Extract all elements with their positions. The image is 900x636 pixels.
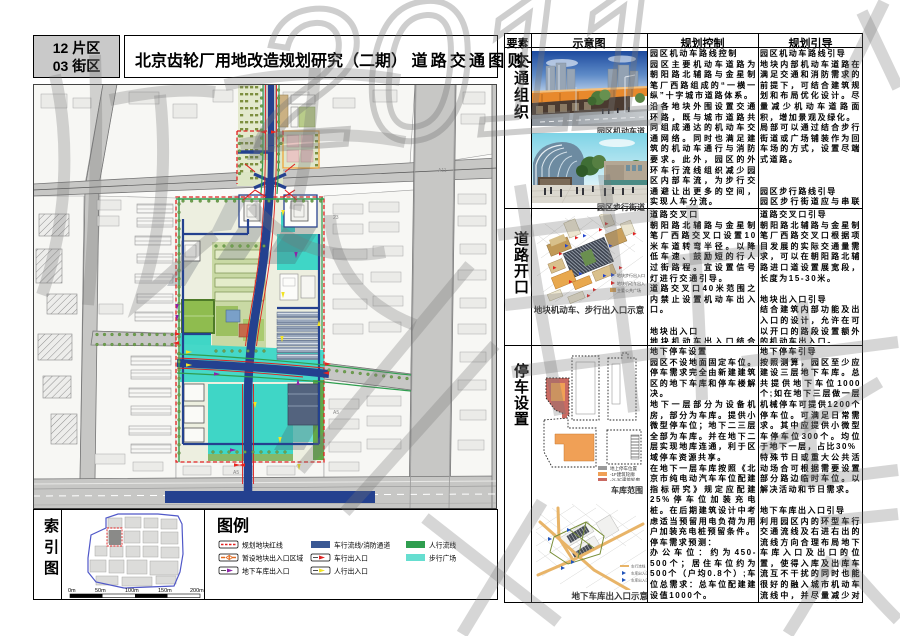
svg-text:地下车库出入口: 地下车库出入口: [242, 567, 290, 576]
svg-text:100m: 100m: [125, 588, 139, 594]
svg-text:200m: 200m: [190, 588, 204, 594]
svg-text:暂设地块出入口区域: 暂设地块出入口区域: [242, 554, 303, 563]
svg-text:0m: 0m: [68, 588, 76, 594]
svg-text:车库出入口: 车库出入口: [631, 571, 647, 576]
svg-text:A5: A5: [233, 470, 239, 476]
svg-text:规划地块红线: 规划地块红线: [242, 541, 283, 550]
svg-text:步行广场: 步行广场: [429, 554, 456, 563]
svg-text:车行流线/消防通道: 车行流线/消防通道: [334, 541, 390, 550]
svg-text:A11: A11: [438, 168, 447, 174]
svg-text:主要公共广场: 主要公共广场: [617, 287, 641, 293]
svg-text:车库出入口: 车库出入口: [631, 578, 647, 583]
svg-text:23: 23: [333, 215, 339, 221]
svg-text:人行流线: 人行流线: [429, 541, 456, 550]
svg-text:车行出入口: 车行出入口: [334, 554, 368, 563]
svg-text:人行出入口: 人行出入口: [334, 567, 368, 576]
svg-text:150m: 150m: [158, 588, 172, 594]
svg-text:车行流线: 车行流线: [631, 564, 646, 569]
svg-text:地块步行出入口: 地块步行出入口: [617, 272, 645, 278]
svg-text:地上停车位置: 地上停车位置: [610, 465, 637, 472]
svg-text:地块机动车出入口: 地块机动车出入口: [617, 280, 645, 286]
svg-text:A5: A5: [333, 410, 339, 416]
svg-text:-2/-3F建筑轮廓: -2/-3F建筑轮廓: [610, 477, 641, 482]
svg-text:50m: 50m: [95, 588, 106, 594]
